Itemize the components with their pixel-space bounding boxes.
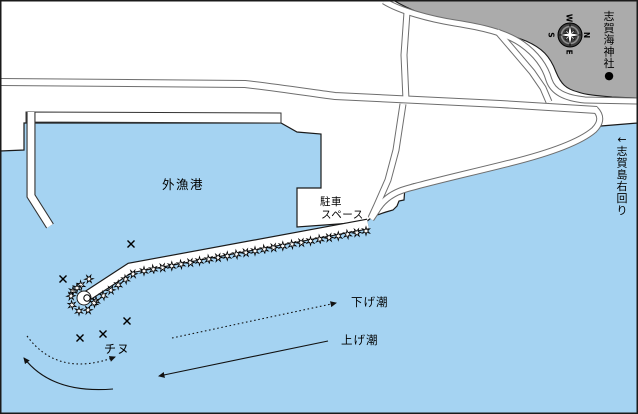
compass-letter-s: S <box>547 32 556 37</box>
chinu-label: チヌ <box>104 342 130 356</box>
flood-tide-label: 上げ潮 <box>341 333 379 347</box>
compass-letter-w: W <box>565 14 574 23</box>
map-canvas: 外漁港駐車スペース下げ潮上げ潮チヌ志賀海神社●←志賀島右回り NESW <box>0 0 638 414</box>
island-route-label: ←志賀島右回り <box>617 133 628 217</box>
compass-letter-e: E <box>565 49 574 54</box>
harbor-map: 外漁港駐車スペース下げ潮上げ潮チヌ志賀海神社●←志賀島右回り NESW <box>0 0 638 414</box>
harbor-light <box>84 295 90 301</box>
compass-letter-n: N <box>582 32 591 38</box>
shrine-label: 志賀海神社● <box>604 10 615 82</box>
sea-area <box>0 123 638 414</box>
ebb-tide-label: 下げ潮 <box>351 295 389 309</box>
parking-label-line1: 駐車 <box>320 195 342 208</box>
beacon-circle <box>84 295 90 301</box>
quay-wall <box>26 112 281 123</box>
harbor-label: 外漁港 <box>162 177 204 192</box>
parking-label-line2: スペース <box>321 209 364 221</box>
